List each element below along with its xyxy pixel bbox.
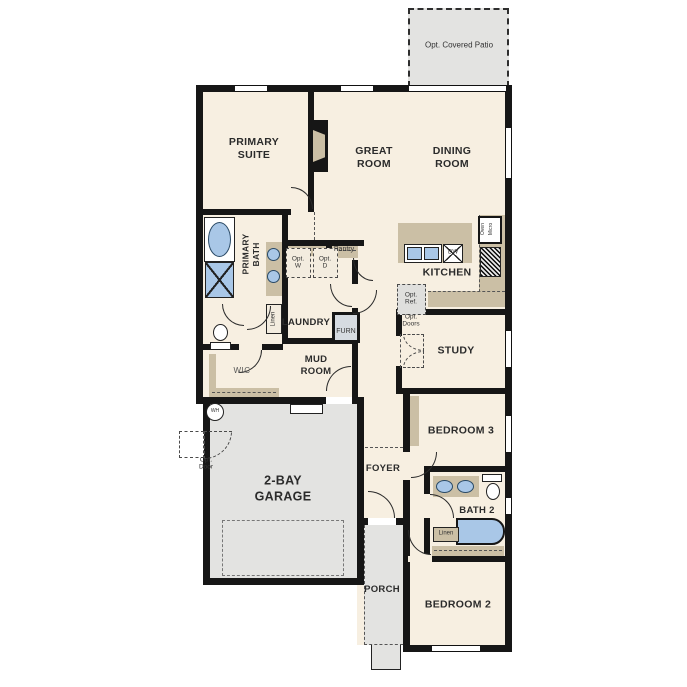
wall bbox=[203, 578, 364, 585]
linen2-label: Linen bbox=[439, 531, 454, 538]
wall bbox=[424, 466, 505, 472]
toilet-tank bbox=[210, 342, 231, 350]
front-door-opening bbox=[368, 518, 396, 525]
patio-label: Opt. Covered Patio bbox=[425, 40, 493, 49]
furnace-label: FURN bbox=[336, 328, 355, 336]
pantry-label: Pantry bbox=[334, 246, 354, 254]
sink bbox=[457, 480, 474, 493]
water-heater-label: WH bbox=[211, 409, 219, 415]
wall bbox=[357, 397, 364, 585]
primary-bath-label: PRIMARY BATH bbox=[240, 234, 261, 275]
porch-label: PORCH bbox=[364, 584, 400, 596]
opt-ref-label: Opt. Ref. bbox=[405, 292, 417, 307]
kitchen-label: KITCHEN bbox=[423, 266, 472, 279]
sink-basin bbox=[407, 247, 422, 260]
oven-label: Oven bbox=[481, 223, 487, 235]
bedroom3-label: BEDROOM 3 bbox=[428, 424, 494, 437]
wall bbox=[203, 209, 291, 215]
bedroom2-closet bbox=[432, 546, 504, 556]
dining-room-label: DINING ROOM bbox=[433, 145, 472, 171]
toilet bbox=[486, 483, 500, 500]
laundry-label: LAUNDRY bbox=[282, 317, 330, 329]
wall bbox=[352, 344, 358, 404]
mud-room-step bbox=[290, 404, 323, 414]
opt-dryer-label: Opt. D bbox=[319, 256, 331, 271]
foyer-boundary-line bbox=[360, 447, 403, 448]
opt-washer-label: Opt. W bbox=[292, 256, 304, 271]
hall-boundary-line bbox=[314, 212, 315, 240]
sink bbox=[267, 270, 280, 283]
range bbox=[480, 247, 501, 277]
porch-step bbox=[371, 645, 401, 670]
foyer-label: FOYER bbox=[366, 463, 400, 475]
window bbox=[505, 331, 512, 367]
wic-closet-rod bbox=[212, 392, 276, 393]
sink-basin bbox=[424, 247, 439, 260]
micro-label: Micro bbox=[489, 223, 495, 235]
bathtub bbox=[208, 222, 231, 257]
garage-door-outline bbox=[222, 520, 344, 576]
bathtub bbox=[456, 518, 505, 545]
wall bbox=[196, 85, 203, 404]
window bbox=[432, 645, 480, 652]
garage-label: 2-BAY GARAGE bbox=[255, 473, 312, 504]
floor-plan: Opt. Covered Patio PRIMARY SUITE GREAT R… bbox=[0, 0, 687, 687]
toilet-tank bbox=[482, 474, 502, 482]
bedroom2-closet-rod bbox=[434, 550, 502, 551]
study-label: STUDY bbox=[437, 344, 474, 357]
window bbox=[341, 85, 373, 92]
mud-room-label: MUD ROOM bbox=[301, 354, 332, 378]
opt-door-label: Opt. Door bbox=[199, 457, 213, 472]
window bbox=[505, 128, 512, 178]
wic-shelf-left bbox=[209, 354, 216, 390]
sink bbox=[436, 480, 453, 493]
dishwasher-label: DW bbox=[448, 250, 458, 257]
shower bbox=[205, 262, 234, 298]
bedroom2-label: BEDROOM 2 bbox=[425, 598, 491, 611]
kitchen-counter-bottom bbox=[428, 291, 505, 307]
wall bbox=[203, 397, 210, 585]
window bbox=[505, 416, 512, 452]
sink bbox=[267, 248, 280, 261]
opt-doors-line bbox=[400, 334, 401, 368]
window bbox=[235, 85, 267, 92]
wall bbox=[396, 388, 505, 394]
opt-door-stoop bbox=[179, 431, 204, 458]
primary-suite-label: PRIMARY SUITE bbox=[229, 136, 279, 162]
wall bbox=[403, 394, 410, 452]
media-niche-inset bbox=[313, 130, 325, 162]
door-opening bbox=[408, 556, 432, 562]
wic-label: WIC bbox=[233, 366, 250, 376]
toilet bbox=[213, 324, 228, 341]
garage-door-opening bbox=[326, 397, 352, 404]
linen-label: Linen bbox=[271, 312, 278, 327]
sliding-door bbox=[409, 85, 506, 92]
great-room-label: GREAT ROOM bbox=[355, 145, 392, 171]
bath2-label: BATH 2 bbox=[459, 505, 494, 517]
opt-doors-label: Opt. Doors bbox=[402, 314, 419, 329]
window bbox=[505, 498, 512, 514]
wall bbox=[403, 480, 410, 520]
